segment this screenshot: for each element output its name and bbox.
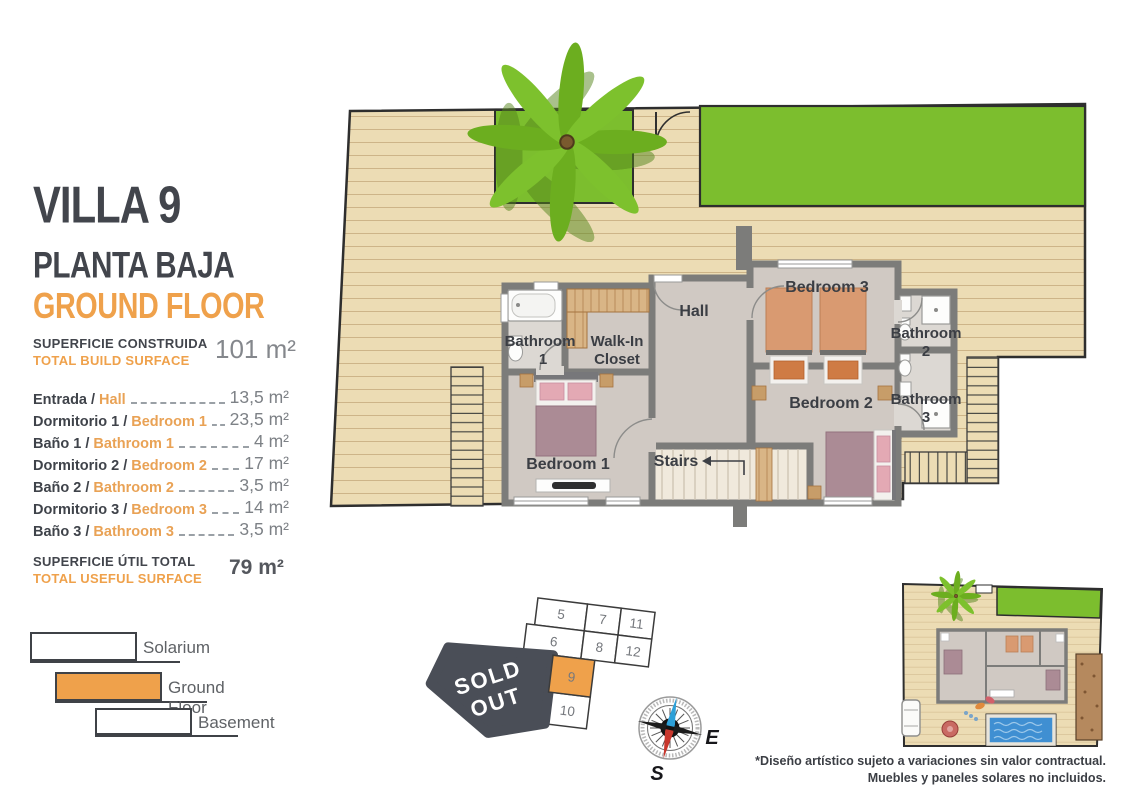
mini-gate — [976, 585, 992, 593]
disclaimer-line-1: *Diseño artístico sujeto a variaciones s… — [676, 753, 1106, 770]
legend-label: Solarium — [143, 638, 210, 658]
room-row-bedroom3: Dormitorio 3 / Bedroom 3 14 m² — [33, 496, 289, 518]
label-bathroom3: Bathroom — [891, 391, 962, 408]
wall-stub-bottom — [733, 501, 747, 527]
wall-stub-top — [736, 226, 752, 270]
label-wic-1: Walk-In — [591, 333, 644, 350]
plot-availability-map: SOLD OUT 5 7 11 6 8 12 9 10 — [426, 586, 655, 751]
room-label-es: Baño 3 / — [33, 524, 89, 540]
label-bathroom2-num: 2 — [922, 343, 930, 360]
mini-dirt-patch — [1076, 654, 1102, 740]
bathtub-icon — [508, 290, 562, 321]
build-surface-value: 101 m² — [215, 334, 296, 365]
label-bedroom2: Bedroom 2 — [789, 395, 873, 412]
plot-num-11: 11 — [629, 615, 645, 632]
legend-label: Basement — [198, 713, 275, 733]
pool-icon — [986, 714, 1056, 746]
subtitle-en: GROUND FLOOR — [33, 288, 276, 324]
exterior-stairs-right — [967, 357, 998, 483]
room-row-bedroom1: Dormitorio 1 / Bedroom 1 23,5 m² — [33, 408, 289, 430]
mini-lawn — [997, 587, 1101, 618]
legend-underline — [30, 661, 180, 663]
room-label-en: Hall — [99, 392, 126, 408]
disclaimer-line-2: Muebles y paneles solares no incluidos. — [676, 770, 1106, 787]
plot-num-10: 10 — [559, 703, 576, 720]
main-floor-plan: Bathroom 1 Walk-In Closet Hall Bedroom 3… — [331, 41, 1085, 527]
legend-swatch-basement — [95, 708, 192, 735]
label-hall: Hall — [679, 303, 708, 320]
label-stairs: Stairs — [654, 453, 699, 470]
room-row-bathroom2: Baño 2 / Bathroom 2 3,5 m² — [33, 474, 289, 496]
room-area-value: 23,5 m² — [230, 409, 289, 430]
label-bedroom3: Bedroom 3 — [785, 279, 869, 296]
mini-site-plan — [902, 571, 1102, 746]
legend-underline — [95, 735, 238, 737]
exterior-stairs-bottom — [905, 452, 967, 483]
car-icon — [902, 700, 920, 736]
room-area-value: 4 m² — [254, 431, 289, 452]
label-bathroom3-num: 3 — [922, 409, 930, 426]
room-label-en: Bedroom 2 — [131, 458, 207, 474]
disclaimer: *Diseño artístico sujeto a variaciones s… — [676, 753, 1106, 787]
build-surface-block: SUPERFICIE CONSTRUIDA TOTAL BUILD SURFAC… — [33, 336, 303, 368]
room-label-es: Dormitorio 2 / — [33, 458, 127, 474]
info-panel: VILLA 9 PLANTA BAJA GROUND FLOOR SUPERFI… — [33, 180, 303, 586]
dotted-leader — [212, 468, 239, 470]
room-area-list: Entrada / Hall 13,5 m² Dormitorio 1 / Be… — [33, 386, 289, 540]
room-area-value: 3,5 m² — [239, 519, 289, 540]
subtitle-es: PLANTA BAJA — [33, 246, 276, 283]
dotted-leader — [179, 490, 234, 492]
compass-south-label: S — [650, 763, 664, 785]
room-row-bathroom3: Baño 3 / Bathroom 3 3,5 m² — [33, 518, 289, 540]
room-label-en: Bathroom 3 — [93, 524, 174, 540]
room-label-en: Bathroom 2 — [93, 480, 174, 496]
useful-surface-value: 79 m² — [229, 556, 284, 580]
page-title: VILLA 9 — [33, 180, 290, 232]
mini-house — [938, 630, 1066, 702]
dotted-leader — [179, 534, 234, 536]
label-bathroom1-num: 1 — [539, 351, 547, 368]
dotted-leader — [212, 512, 239, 514]
dotted-leader — [131, 402, 225, 404]
compass-east-label: E — [705, 727, 719, 749]
label-bathroom2: Bathroom — [891, 325, 962, 342]
room-row-hall: Entrada / Hall 13,5 m² — [33, 386, 289, 408]
room-row-bedroom2: Dormitorio 2 / Bedroom 2 17 m² — [33, 452, 289, 474]
room-row-bathroom1: Baño 1 / Bathroom 1 4 m² — [33, 430, 289, 452]
room-area-value: 13,5 m² — [230, 387, 289, 408]
brochure-page: Bathroom 1 Walk-In Closet Hall Bedroom 3… — [0, 0, 1132, 800]
useful-surface-block: SUPERFICIE ÚTIL TOTAL TOTAL USEFUL SURFA… — [33, 554, 303, 586]
room-area-value: 14 m² — [244, 497, 289, 518]
dotted-leader — [212, 424, 225, 426]
label-bathroom1: Bathroom — [505, 333, 576, 350]
room-label-es: Baño 1 / — [33, 436, 89, 452]
plot-num-12: 12 — [625, 643, 642, 660]
room-label-en: Bedroom 3 — [131, 502, 207, 518]
room-label-es: Entrada / — [33, 392, 95, 408]
dresser-tv-icon — [536, 479, 610, 492]
room-label-en: Bedroom 1 — [131, 414, 207, 430]
room-label-es: Dormitorio 3 / — [33, 502, 127, 518]
room-label-en: Bathroom 1 — [93, 436, 174, 452]
exterior-stairs-left — [451, 367, 483, 506]
label-bedroom1: Bedroom 1 — [526, 456, 610, 473]
label-wic-2: Closet — [594, 351, 640, 368]
room-area-value: 17 m² — [244, 453, 289, 474]
dotted-leader — [179, 446, 249, 448]
legend-swatch-solarium — [30, 632, 137, 661]
room-label-es: Baño 2 / — [33, 480, 89, 496]
lawn-large — [700, 106, 1085, 206]
room-label-es: Dormitorio 1 / — [33, 414, 127, 430]
room-area-value: 3,5 m² — [239, 475, 289, 496]
legend-swatch-ground-floor — [55, 672, 162, 701]
